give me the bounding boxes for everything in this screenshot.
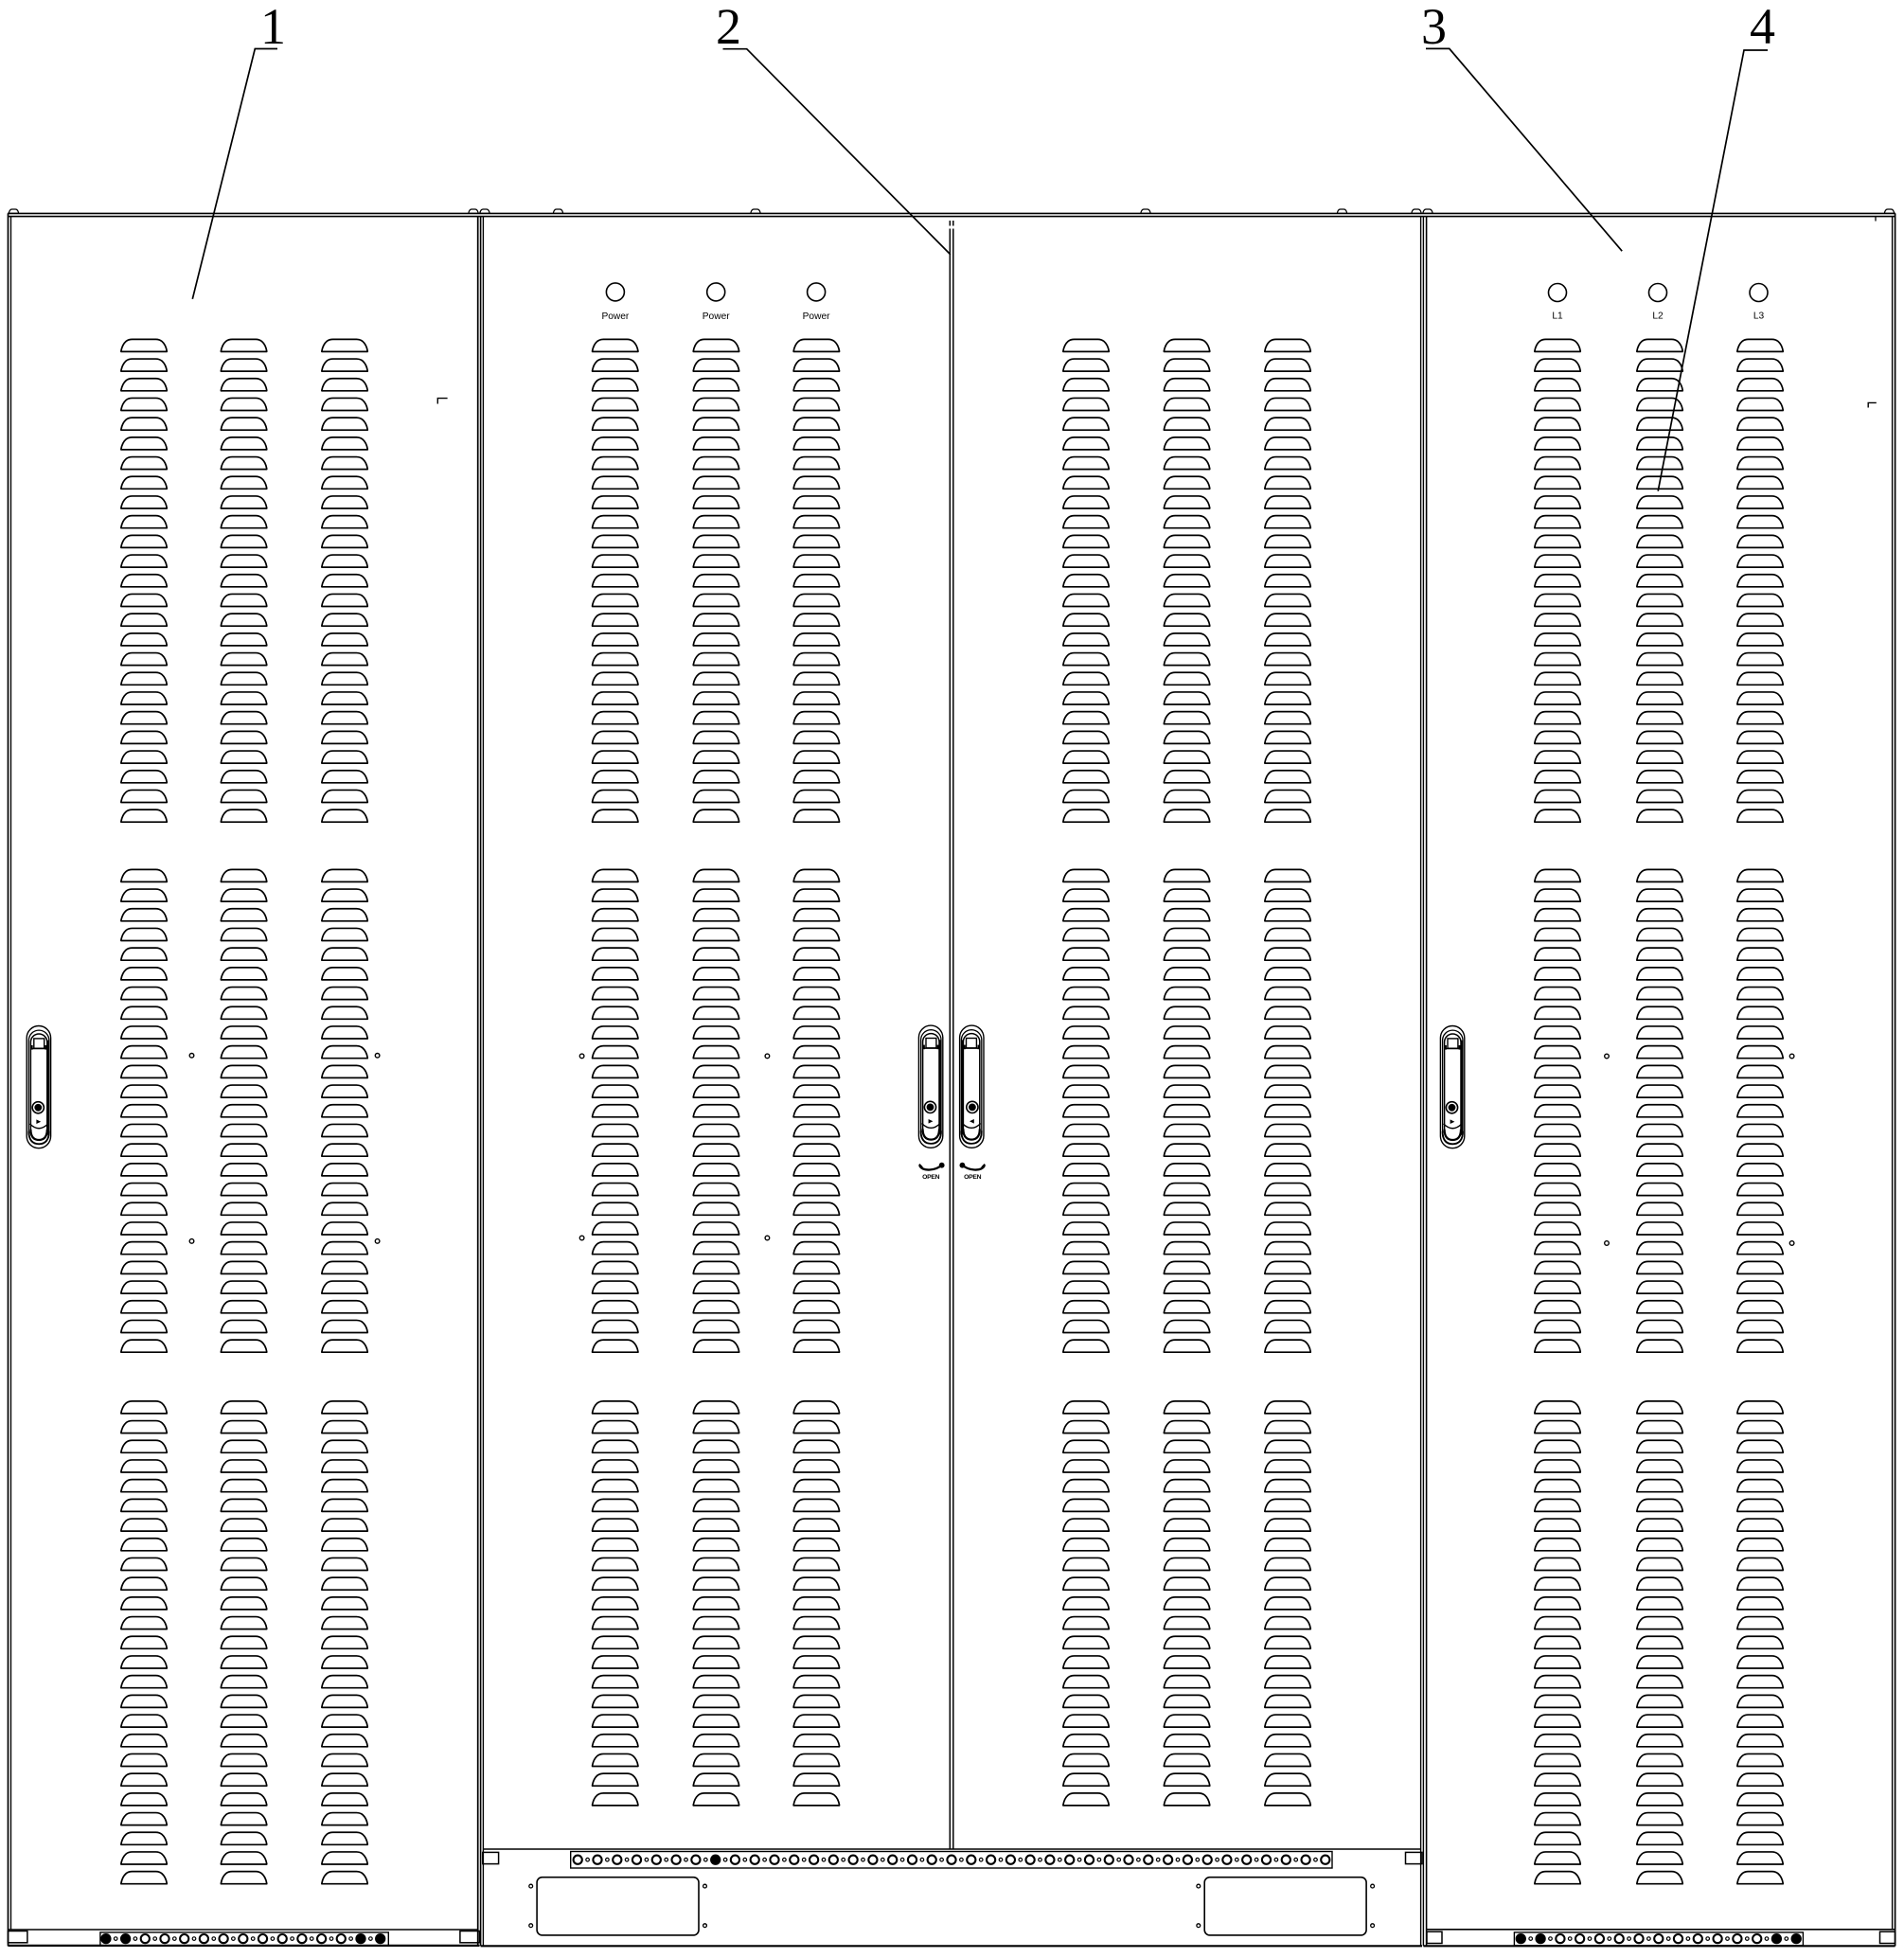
svg-text:4: 4 bbox=[1750, 0, 1775, 55]
svg-text:Power: Power bbox=[601, 311, 629, 322]
svg-text:2: 2 bbox=[716, 0, 741, 55]
svg-text:L2: L2 bbox=[1652, 311, 1664, 322]
svg-text:Power: Power bbox=[703, 311, 730, 322]
svg-text:Power: Power bbox=[803, 311, 830, 322]
svg-text:L1: L1 bbox=[1552, 311, 1563, 322]
svg-text:1: 1 bbox=[260, 0, 286, 55]
svg-text:OPEN: OPEN bbox=[964, 1174, 981, 1181]
svg-text:L3: L3 bbox=[1753, 311, 1765, 322]
svg-text:3: 3 bbox=[1421, 0, 1447, 55]
svg-text:OPEN: OPEN bbox=[922, 1174, 939, 1181]
